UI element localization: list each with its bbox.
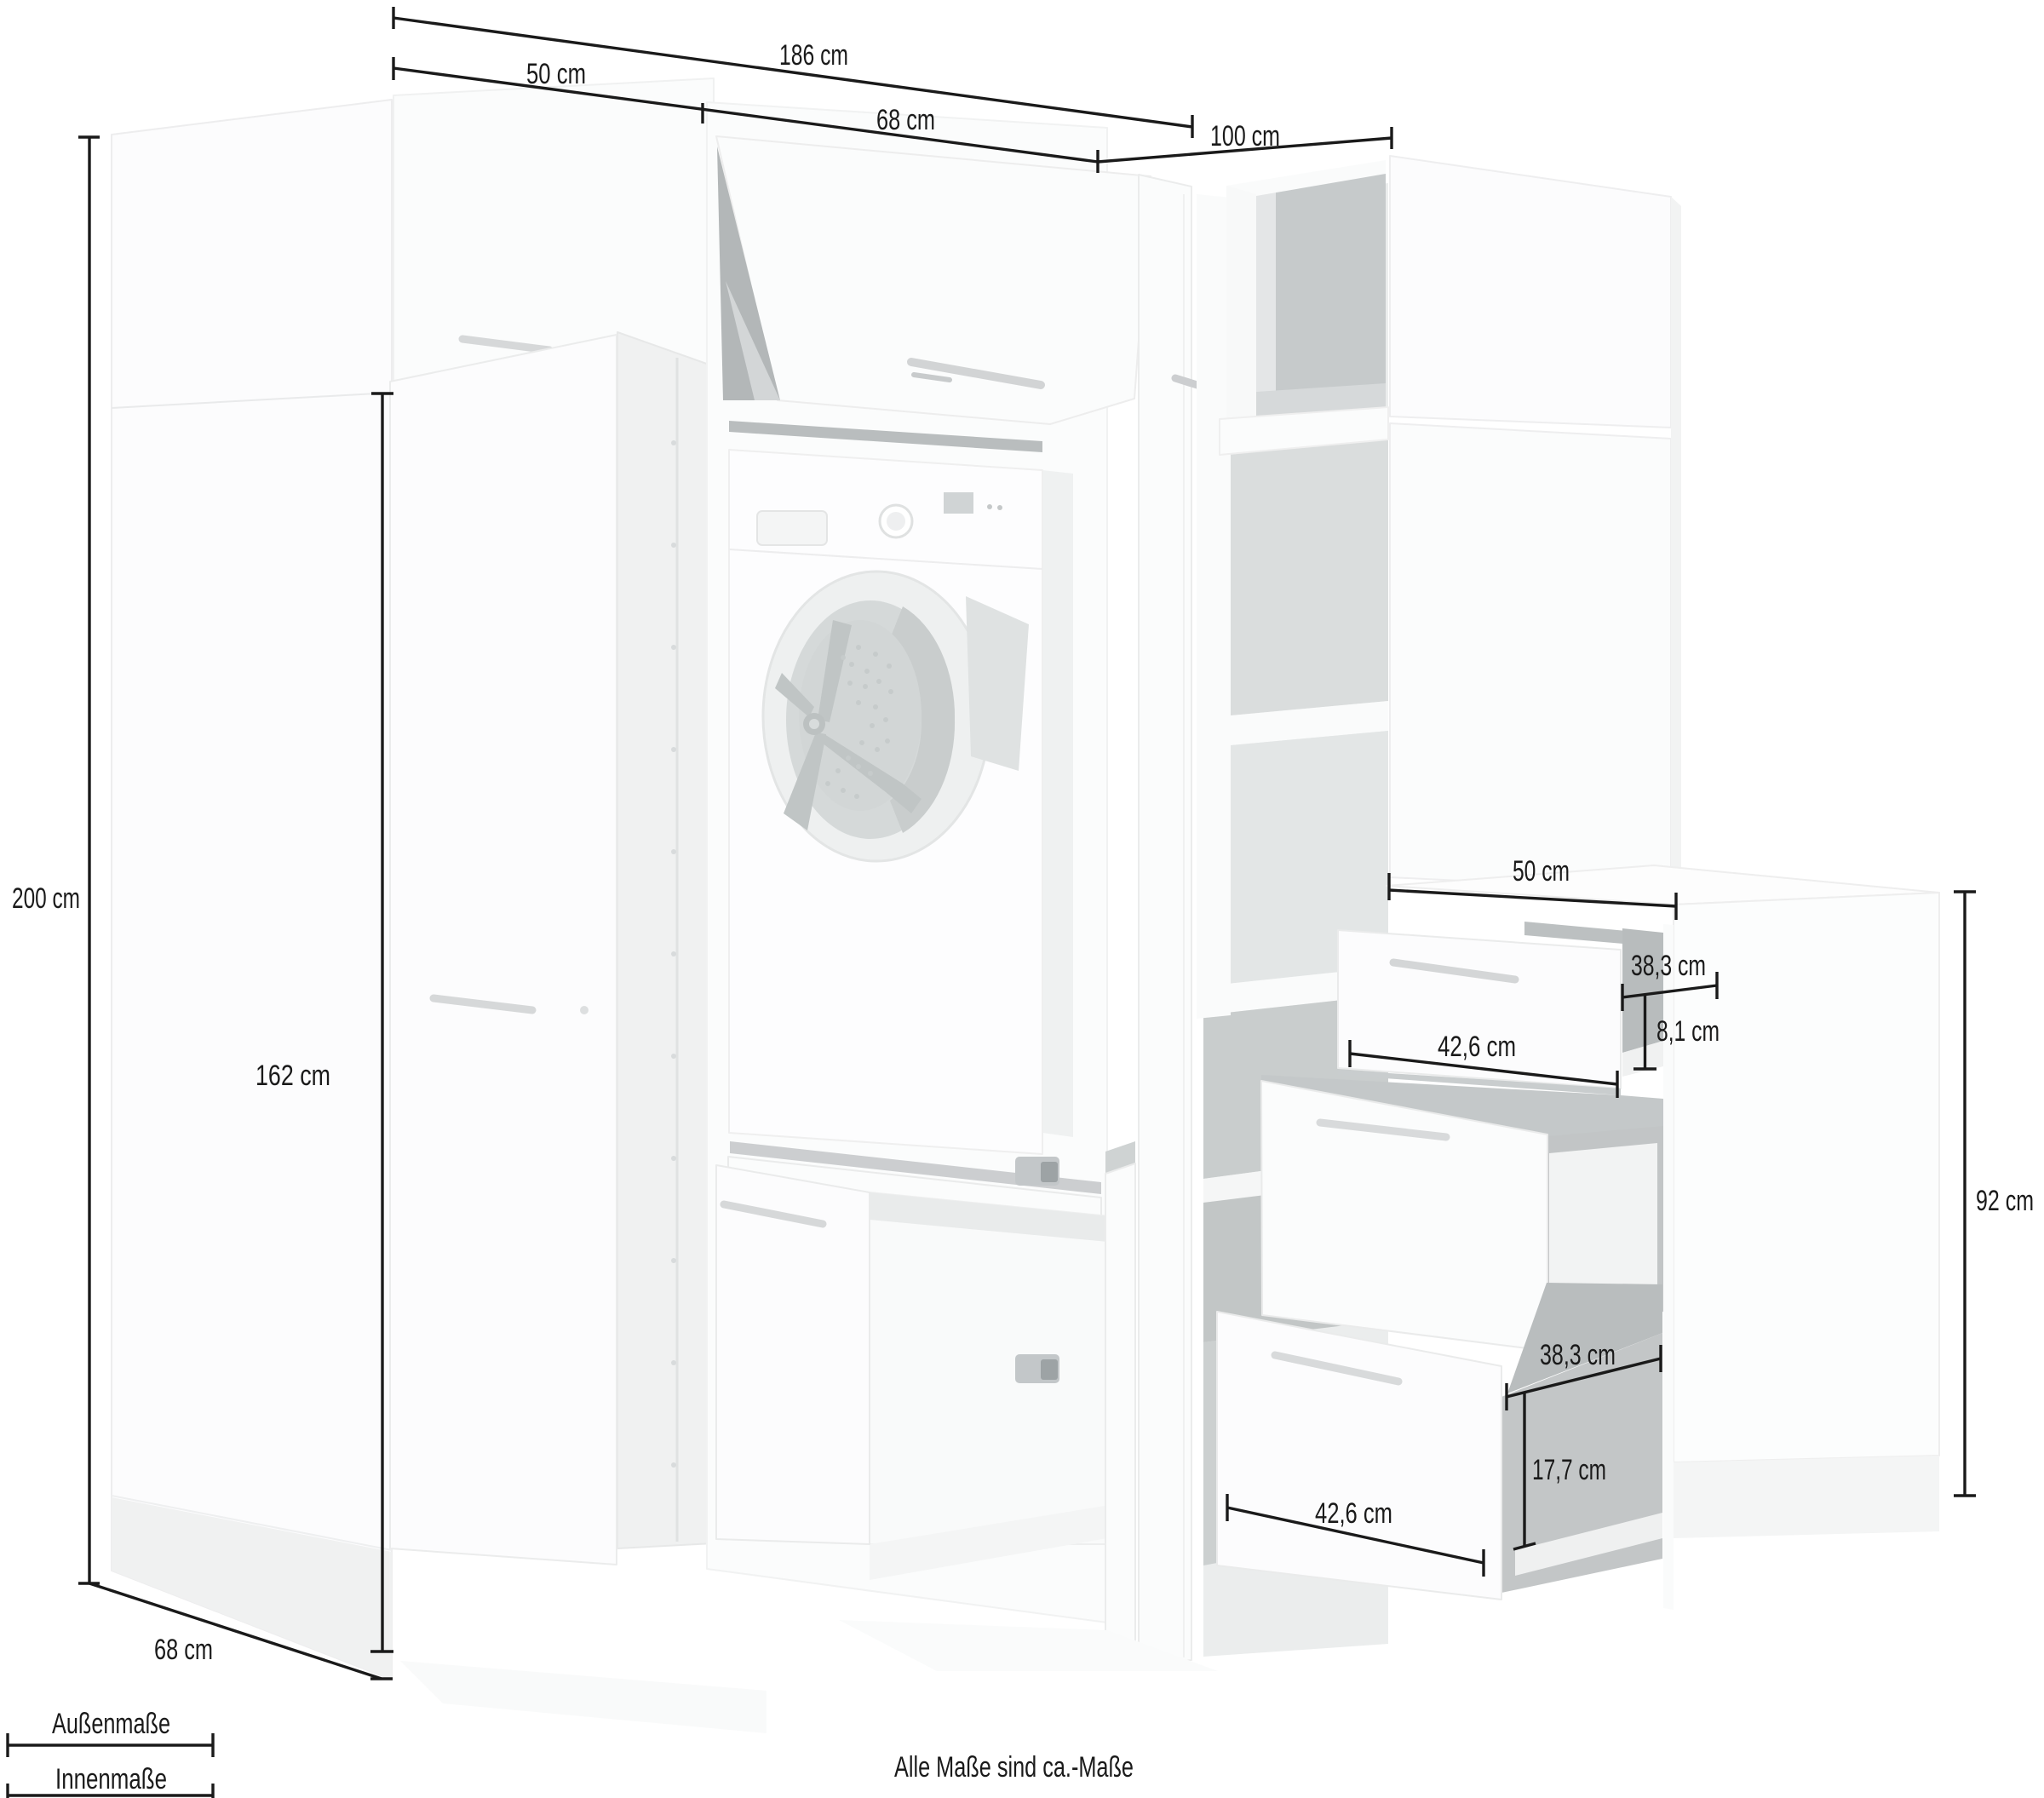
svg-text:42,6 cm: 42,6 cm (1315, 1497, 1392, 1530)
svg-text:17,7 cm: 17,7 cm (1532, 1454, 1606, 1486)
svg-text:50 cm: 50 cm (526, 58, 586, 90)
svg-text:68 cm: 68 cm (154, 1634, 213, 1666)
svg-text:42,6 cm: 42,6 cm (1438, 1031, 1516, 1063)
svg-text:38,3 cm: 38,3 cm (1540, 1339, 1616, 1371)
svg-text:68 cm: 68 cm (876, 104, 935, 136)
svg-text:50 cm: 50 cm (1513, 855, 1570, 888)
svg-text:38,3 cm: 38,3 cm (1631, 950, 1706, 982)
svg-text:Außenmaße: Außenmaße (52, 1708, 170, 1740)
svg-text:186 cm: 186 cm (779, 39, 848, 72)
svg-text:162 cm: 162 cm (255, 1060, 330, 1092)
svg-text:200 cm: 200 cm (12, 882, 80, 915)
svg-text:Innenmaße: Innenmaße (55, 1763, 167, 1795)
svg-text:Alle Maße sind ca.-Maße: Alle Maße sind ca.-Maße (894, 1751, 1134, 1784)
svg-text:100 cm: 100 cm (1210, 120, 1280, 152)
svg-text:8,1 cm: 8,1 cm (1656, 1015, 1720, 1048)
svg-text:92 cm: 92 cm (1976, 1185, 2034, 1217)
